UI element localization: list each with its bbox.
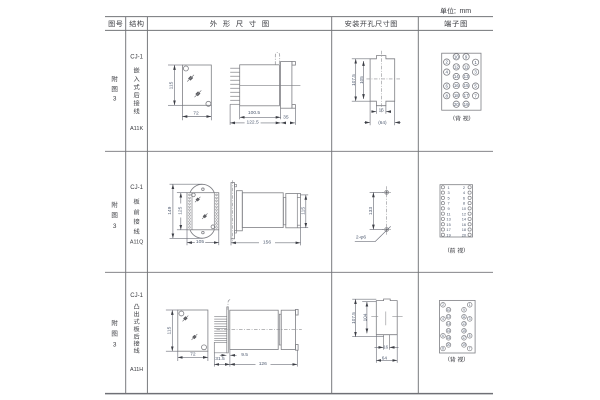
svg-text:CJ-1: CJ-1 — [130, 55, 143, 61]
svg-text:15: 15 — [462, 329, 466, 333]
svg-text:5: 5 — [469, 334, 471, 338]
svg-text:16: 16 — [447, 329, 451, 333]
svg-text:(: ( — [453, 116, 455, 122]
svg-text:CJ-1: CJ-1 — [130, 185, 143, 191]
svg-text:7: 7 — [448, 201, 450, 206]
svg-text:105: 105 — [359, 76, 364, 84]
svg-text:2-φ6: 2-φ6 — [356, 234, 367, 240]
svg-text:5: 5 — [448, 195, 450, 200]
svg-text:): ) — [469, 116, 471, 122]
svg-text:72: 72 — [193, 111, 199, 117]
svg-text:3: 3 — [469, 317, 471, 321]
svg-text:12: 12 — [462, 211, 466, 216]
svg-text:105: 105 — [196, 239, 204, 245]
svg-text:11: 11 — [464, 65, 469, 70]
svg-text:12: 12 — [447, 315, 451, 319]
svg-text:10: 10 — [447, 308, 451, 312]
svg-text:6: 6 — [463, 195, 465, 200]
svg-text:16: 16 — [379, 108, 385, 113]
svg-text:107.5: 107.5 — [351, 74, 356, 86]
svg-text:A11H: A11H — [130, 367, 143, 373]
svg-text:10: 10 — [454, 54, 459, 59]
svg-text:13: 13 — [462, 322, 466, 326]
svg-text:): ) — [463, 357, 465, 363]
svg-text:104: 104 — [363, 313, 368, 321]
svg-text:15: 15 — [446, 222, 450, 227]
svg-text:6: 6 — [442, 334, 444, 338]
svg-text:72: 72 — [190, 352, 196, 358]
svg-text:18: 18 — [447, 336, 451, 340]
svg-text:(: ( — [448, 248, 450, 254]
svg-text:31.5: 31.5 — [215, 356, 225, 362]
svg-text:): ) — [463, 248, 465, 254]
svg-text:16: 16 — [462, 222, 466, 227]
svg-text:2: 2 — [463, 185, 465, 190]
svg-text:35: 35 — [283, 115, 289, 121]
svg-text:3: 3 — [113, 223, 117, 230]
svg-text:8: 8 — [463, 201, 465, 206]
svg-text:149: 149 — [167, 206, 173, 214]
svg-text:A11Q: A11Q — [130, 239, 143, 245]
svg-text:9: 9 — [463, 308, 465, 312]
svg-text:A11K: A11K — [130, 126, 144, 132]
svg-text:122.5: 122.5 — [246, 119, 259, 125]
svg-text:mm: mm — [459, 8, 471, 15]
svg-text:20: 20 — [447, 343, 451, 347]
svg-text:8: 8 — [442, 347, 444, 351]
svg-text:100.5: 100.5 — [248, 110, 261, 116]
svg-text:126: 126 — [259, 361, 267, 367]
svg-text:1: 1 — [448, 185, 450, 190]
svg-text:115: 115 — [301, 207, 307, 215]
svg-text:7: 7 — [469, 347, 471, 351]
svg-text:(: ( — [448, 357, 450, 363]
svg-text:14: 14 — [454, 74, 459, 79]
svg-text:3: 3 — [448, 190, 450, 195]
svg-text:CJ-1: CJ-1 — [130, 293, 143, 299]
svg-text:3: 3 — [113, 96, 117, 103]
svg-text:4: 4 — [442, 317, 444, 321]
svg-text:16: 16 — [383, 344, 389, 349]
svg-text:19: 19 — [464, 102, 469, 107]
svg-text:9.5: 9.5 — [241, 352, 248, 358]
svg-text:19: 19 — [446, 232, 450, 237]
svg-text:19: 19 — [462, 343, 466, 347]
svg-text:115: 115 — [167, 326, 173, 334]
svg-text:17: 17 — [446, 227, 450, 232]
svg-text:156: 156 — [263, 239, 271, 245]
svg-text:2: 2 — [442, 303, 444, 307]
svg-text:115: 115 — [169, 81, 175, 89]
svg-text:18: 18 — [462, 227, 466, 232]
svg-text:13: 13 — [446, 217, 450, 222]
svg-text:17: 17 — [464, 93, 469, 98]
svg-text:12: 12 — [454, 65, 459, 70]
svg-text:(64): (64) — [378, 120, 387, 125]
svg-text:3: 3 — [113, 341, 117, 348]
svg-text:18: 18 — [454, 93, 459, 98]
svg-text:107.5: 107.5 — [351, 312, 356, 324]
svg-text:17: 17 — [462, 336, 466, 340]
svg-text:64: 64 — [382, 356, 388, 361]
svg-text:11: 11 — [447, 211, 451, 216]
svg-text:9: 9 — [448, 206, 450, 211]
svg-text:13: 13 — [464, 74, 469, 79]
svg-text:16: 16 — [454, 83, 459, 88]
svg-text:15: 15 — [464, 83, 469, 88]
svg-text:11: 11 — [462, 315, 466, 319]
svg-text:1: 1 — [469, 303, 471, 307]
svg-text:20: 20 — [454, 102, 459, 107]
svg-text:125: 125 — [177, 206, 183, 214]
svg-text:133: 133 — [368, 207, 374, 215]
svg-text:14: 14 — [447, 322, 451, 326]
